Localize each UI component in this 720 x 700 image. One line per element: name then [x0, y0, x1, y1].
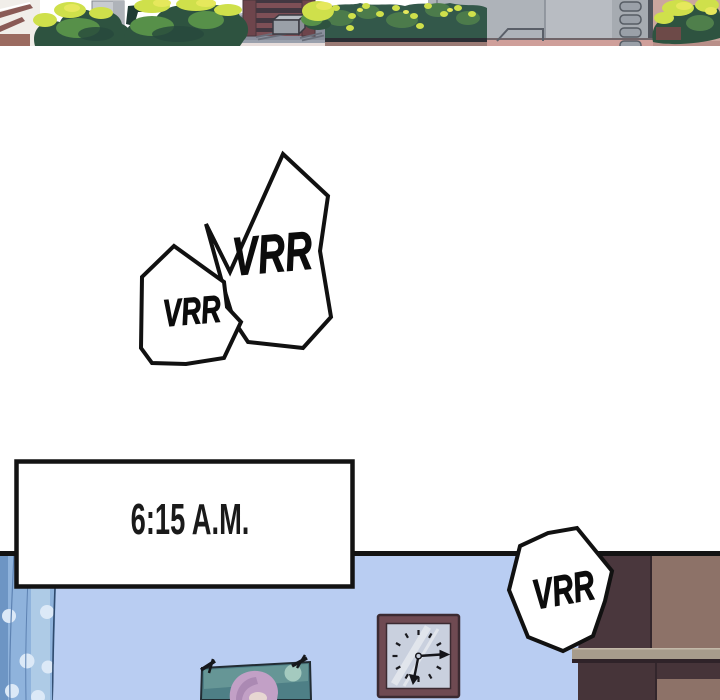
sfx-text-small: VRR [161, 288, 222, 335]
clock-center-pin [416, 653, 422, 659]
steps [0, 0, 40, 46]
bush-shadow-patch [656, 27, 681, 40]
shelf-highlight [572, 648, 720, 650]
wardrobe-lower-panel [656, 679, 720, 700]
comic-page: 6:15 A.M. VRR VRR VRR [0, 0, 720, 700]
gray-wall-light-panel [545, 0, 612, 41]
shelf-shadow [572, 659, 720, 663]
bush-far-right [652, 0, 720, 44]
caption-text: 6:15 A.M. [131, 494, 250, 543]
bush-clump [301, 1, 334, 30]
bush-middle [124, 0, 248, 46]
hedge [325, 3, 487, 46]
sfx-text-large: VRR [230, 220, 315, 287]
caption-box: 6:15 A.M. [17, 462, 353, 587]
wall-edge [648, 0, 653, 42]
wall-clock [378, 615, 459, 697]
wardrobe-side-panel [651, 556, 720, 650]
parcel-box [273, 15, 305, 34]
street-scene-strip [0, 0, 720, 50]
